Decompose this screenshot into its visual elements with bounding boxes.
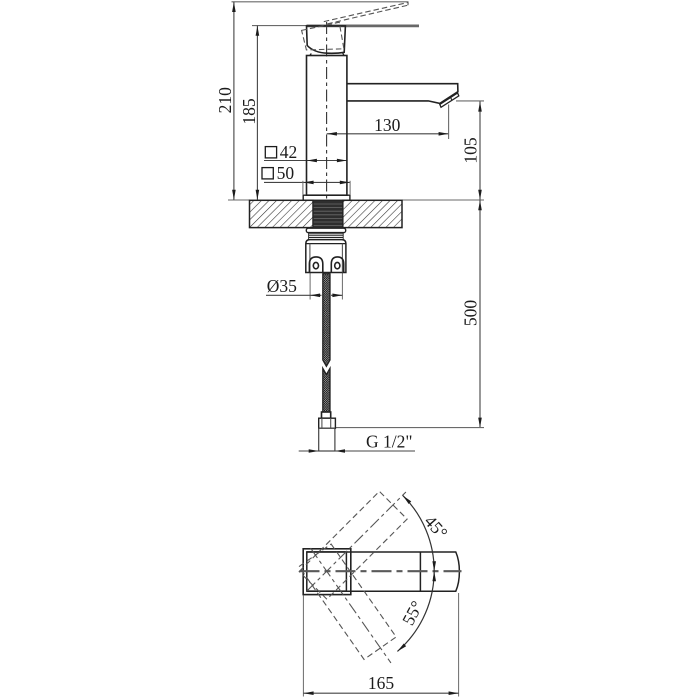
svg-text:185: 185: [239, 98, 259, 125]
svg-text:50: 50: [277, 163, 295, 183]
svg-text:210: 210: [215, 87, 235, 114]
svg-text:165: 165: [368, 673, 395, 693]
svg-text:500: 500: [461, 300, 481, 327]
svg-text:130: 130: [374, 115, 401, 135]
svg-text:Ø35: Ø35: [267, 276, 297, 296]
svg-text:G 1/2": G 1/2": [366, 432, 413, 452]
svg-text:42: 42: [280, 142, 298, 162]
svg-text:105: 105: [461, 137, 481, 164]
